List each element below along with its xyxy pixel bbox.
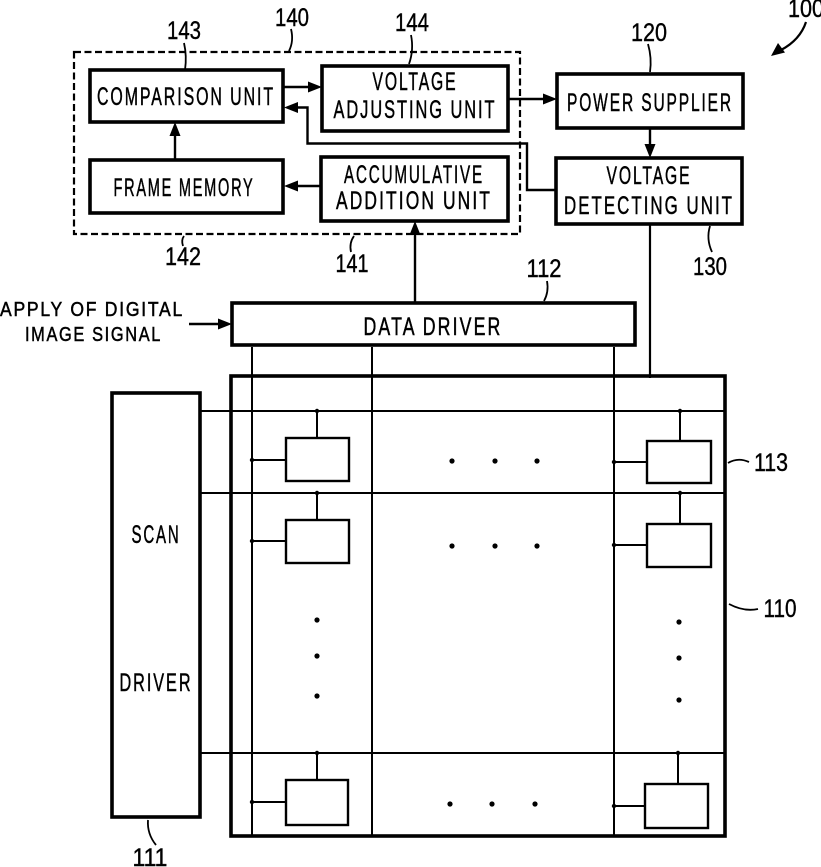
svg-text:120: 120 bbox=[631, 19, 667, 47]
svg-text:141: 141 bbox=[336, 250, 369, 278]
svg-text:VOLTAGE: VOLTAGE bbox=[607, 162, 692, 190]
svg-text:140: 140 bbox=[275, 4, 309, 32]
svg-text:ADJUSTING UNIT: ADJUSTING UNIT bbox=[334, 96, 497, 124]
svg-text:COMPARISON UNIT: COMPARISON UNIT bbox=[97, 83, 275, 111]
svg-text:DRIVER: DRIVER bbox=[120, 669, 193, 697]
svg-text:FRAME MEMORY: FRAME MEMORY bbox=[114, 174, 255, 202]
svg-text:DETECTING UNIT: DETECTING UNIT bbox=[564, 192, 734, 220]
svg-text:SCAN: SCAN bbox=[132, 521, 181, 549]
svg-text:POWER SUPPLIER: POWER SUPPLIER bbox=[567, 89, 733, 117]
svg-text:113: 113 bbox=[754, 449, 788, 477]
svg-text:144: 144 bbox=[395, 9, 429, 37]
svg-text:111: 111 bbox=[133, 844, 168, 867]
svg-text:100: 100 bbox=[788, 0, 821, 23]
svg-text:142: 142 bbox=[165, 243, 201, 271]
svg-text:IMAGE SIGNAL: IMAGE SIGNAL bbox=[25, 324, 162, 346]
svg-text:ACCUMULATIVE: ACCUMULATIVE bbox=[344, 161, 484, 189]
svg-text:130: 130 bbox=[693, 253, 727, 281]
svg-text:ADDITION UNIT: ADDITION UNIT bbox=[336, 187, 492, 215]
svg-text:DATA DRIVER: DATA DRIVER bbox=[364, 313, 503, 341]
svg-text:APPLY OF DIGITAL: APPLY OF DIGITAL bbox=[0, 299, 184, 321]
svg-text:VOLTAGE: VOLTAGE bbox=[373, 68, 458, 96]
svg-text:110: 110 bbox=[764, 595, 797, 623]
svg-text:112: 112 bbox=[527, 255, 562, 283]
svg-text:143: 143 bbox=[167, 17, 201, 45]
